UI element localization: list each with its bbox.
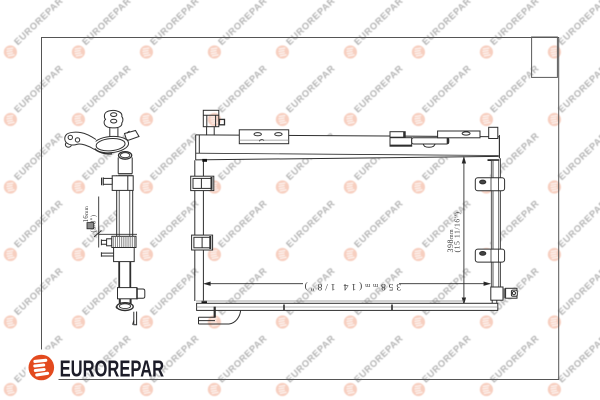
svg-text:EUROREPAR: EUROREPAR <box>60 357 165 382</box>
svg-text:(15 11/16"): (15 11/16") <box>453 211 462 252</box>
svg-text:358mm(14 1/8"): 358mm(14 1/8") <box>302 281 401 292</box>
svg-text:16mm: 16mm <box>82 205 90 222</box>
